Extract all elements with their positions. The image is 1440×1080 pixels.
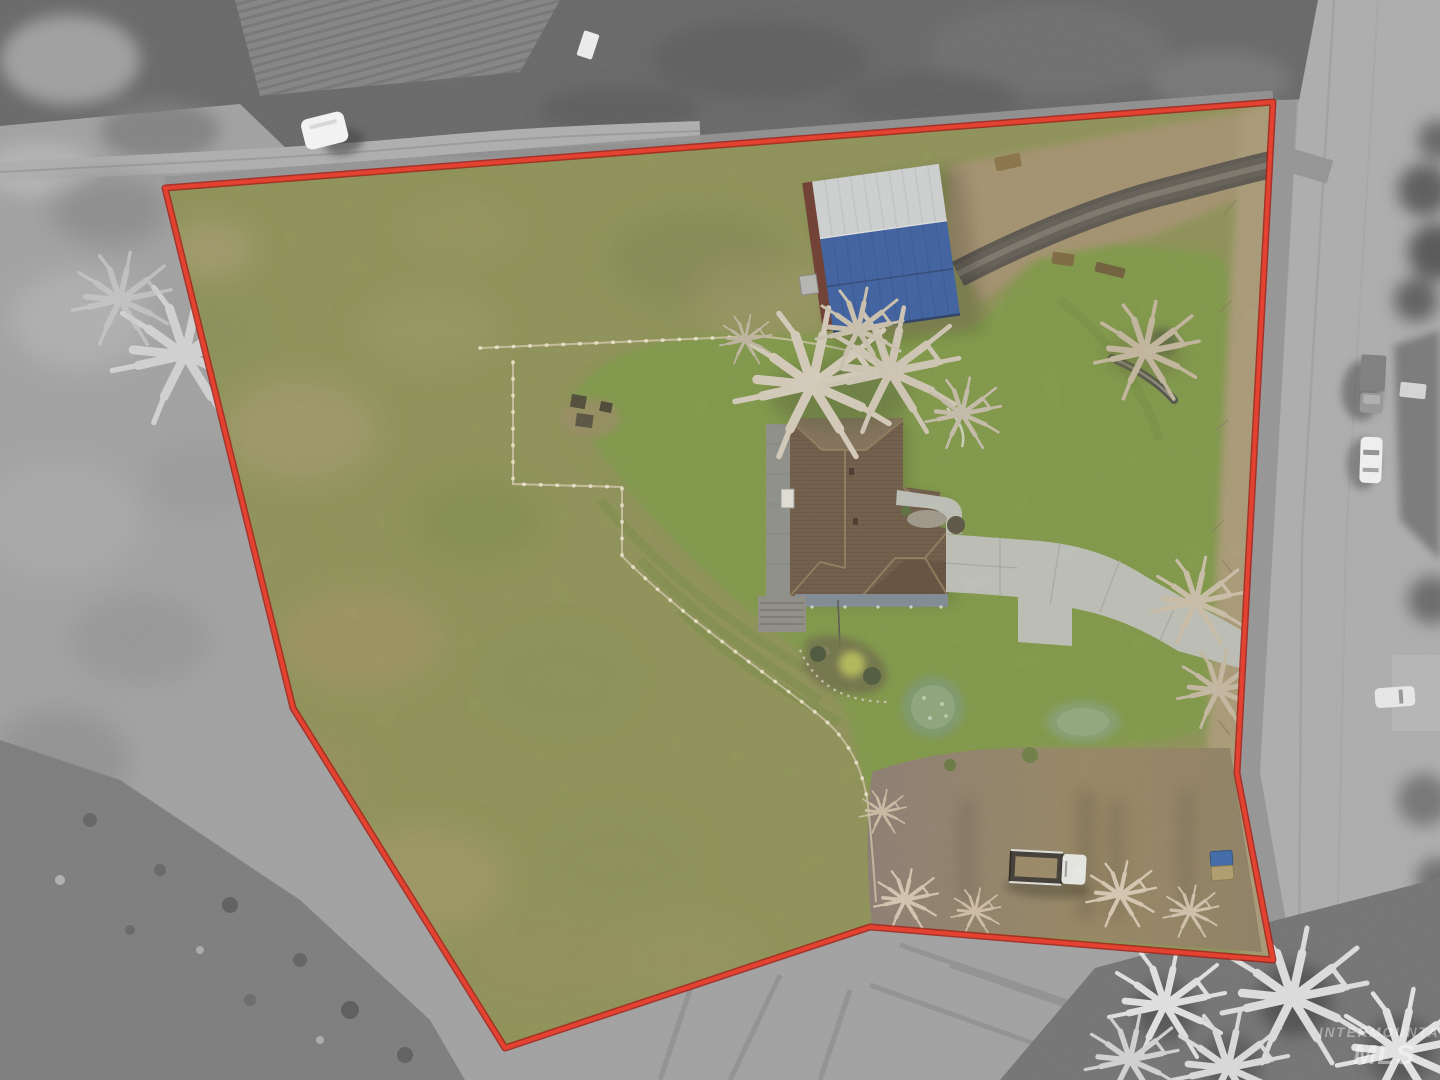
photo-grain: [0, 0, 1440, 1080]
watermark-line1: INTERMOUNTAIN: [1319, 1025, 1440, 1040]
watermark-line2: MLS: [1353, 1039, 1415, 1070]
aerial-photo: INTERMOUNTAIN MLS: [0, 0, 1440, 1080]
